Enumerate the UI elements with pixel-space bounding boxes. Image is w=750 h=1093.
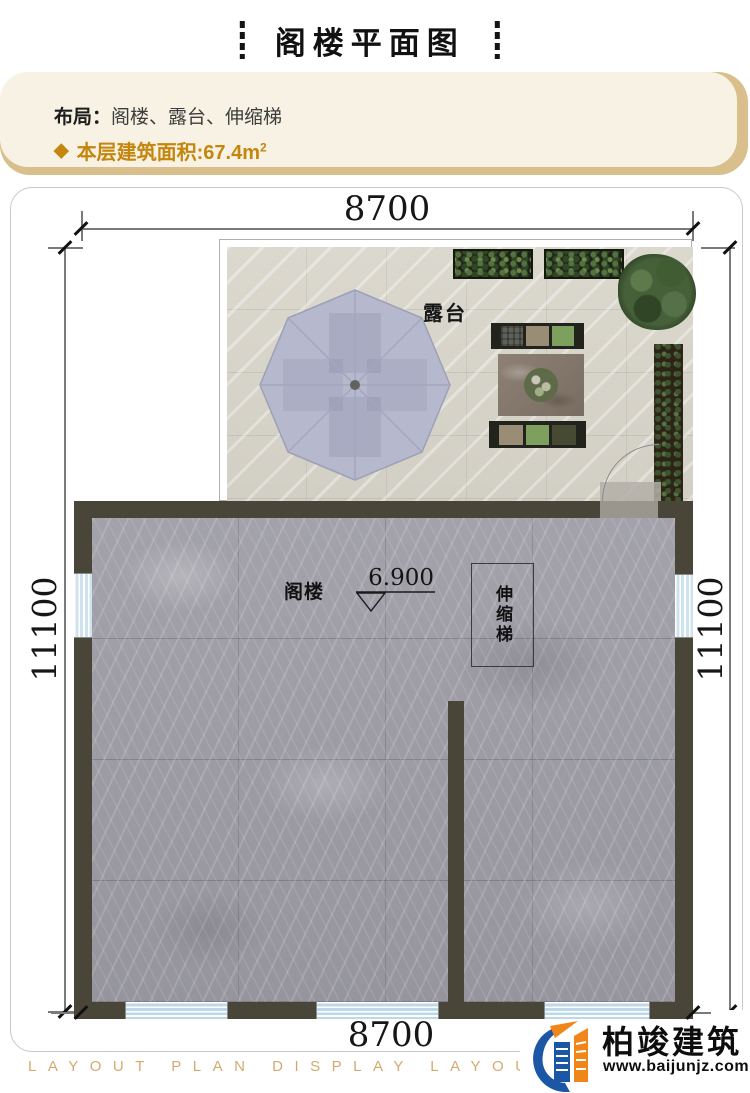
attic-label: 阁楼 — [284, 577, 324, 604]
logo-url: www.baijunjz.com — [603, 1058, 749, 1076]
info-panel-inner: 布局：阁楼、露台、伸缩梯 ◆ 本层建筑面积:67.4m2 — [0, 72, 737, 167]
area-line: ◆ 本层建筑面积:67.4m2 — [54, 136, 267, 165]
area-text: 本层建筑面积:67.4m2 — [77, 136, 267, 165]
table-planter-icon — [524, 368, 558, 402]
bench-cushion — [552, 425, 576, 445]
page-header: 阁楼平面图 — [240, 16, 500, 64]
planter-box-icon — [544, 249, 624, 279]
window-left — [74, 573, 92, 638]
right-dash-bar-icon — [495, 21, 500, 59]
bench-top — [491, 323, 584, 349]
window-bottom-3 — [544, 1002, 650, 1019]
floor-plan-canvas: 8700 11100 11100 8700 露台 — [10, 187, 743, 1052]
umbrella-icon — [257, 287, 453, 483]
bench-cushion — [552, 326, 574, 346]
window-right — [675, 574, 693, 638]
diamond-icon: ◆ — [54, 141, 69, 160]
bench-bottom — [489, 421, 586, 448]
dimension-top: 8700 — [327, 189, 447, 229]
planter-box-icon — [453, 249, 533, 279]
dimension-right: 11100 — [691, 559, 727, 699]
info-panel: 布局：阁楼、露台、伸缩梯 ◆ 本层建筑面积:67.4m2 — [0, 72, 748, 175]
layout-line: 布局：阁楼、露台、伸缩梯 — [54, 102, 282, 129]
layout-label: 布局： — [54, 107, 111, 128]
bench-cushion — [501, 326, 523, 346]
dimension-top-line — [81, 228, 693, 230]
window-bottom-1 — [125, 1002, 228, 1019]
bench-cushion — [526, 425, 550, 445]
logo-buildings-icon — [524, 1018, 602, 1092]
dimension-left-line — [64, 247, 66, 1011]
terrace-table — [498, 354, 584, 416]
elevation-marker-icon — [356, 591, 438, 615]
page-title: 阁楼平面图 — [275, 18, 465, 63]
elevation-value: 6.900 — [356, 565, 434, 591]
telescopic-ladder-label: 伸缩梯 — [471, 563, 534, 667]
bench-cushion — [499, 425, 523, 445]
dimension-left: 11100 — [25, 559, 61, 699]
wall-interior — [448, 701, 464, 1019]
dimension-bottom: 8700 — [331, 1015, 451, 1055]
door-opening — [600, 501, 658, 518]
area-superscript: 2 — [260, 140, 267, 154]
dimension-right-line — [729, 247, 731, 1011]
layout-value: 阁楼、露台、伸缩梯 — [111, 107, 282, 128]
attic-floor-plan-page: 阁楼平面图 布局：阁楼、露台、伸缩梯 ◆ 本层建筑面积:67.4m2 8700 … — [0, 0, 750, 1093]
bench-cushion — [526, 326, 548, 346]
tree-icon — [618, 254, 696, 330]
left-dash-bar-icon — [240, 21, 245, 59]
logo-name: 柏竣建筑 — [602, 1017, 742, 1063]
company-logo: 柏竣建筑 www.baijunjz.com — [520, 1010, 750, 1093]
